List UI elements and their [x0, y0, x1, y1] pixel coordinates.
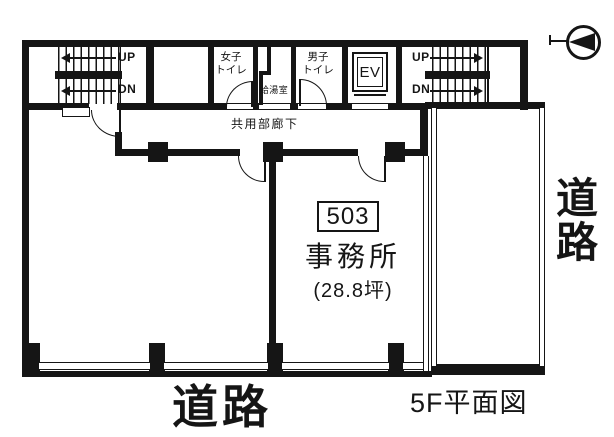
unit-number: 503 — [326, 203, 369, 231]
up-arrow-line — [430, 57, 478, 59]
door-arc-women-toilet — [226, 81, 253, 107]
wall-room-divider — [269, 156, 276, 348]
stairs-right-down-label: DN — [412, 83, 430, 97]
unit-number-badge: 503 — [317, 201, 379, 232]
wall-divider — [396, 47, 402, 105]
balcony-left-edge — [431, 108, 437, 366]
window-office-right — [423, 156, 429, 371]
balcony-right-edge — [539, 108, 545, 366]
door-leaf — [299, 79, 301, 106]
pillar — [149, 343, 165, 372]
pillar — [22, 343, 40, 372]
wall-outer-right-upper — [520, 40, 528, 110]
wall-corridor-bottom — [117, 149, 240, 156]
window — [282, 362, 389, 370]
up-arrow-line — [66, 57, 116, 59]
unit-use-label: 事務所 — [300, 241, 406, 273]
unit-area-label: (28.8坪) — [300, 280, 406, 303]
stair-landing-step — [62, 107, 90, 117]
compass-tail — [551, 40, 569, 42]
wall-divider — [146, 47, 154, 105]
door-leaf — [251, 81, 253, 107]
up-arrow-head — [61, 53, 70, 63]
stairs-landing — [425, 71, 490, 79]
down-arrow-head — [474, 86, 483, 96]
pillar — [148, 142, 168, 162]
down-arrow-line — [430, 90, 478, 92]
door-leaf — [264, 156, 266, 182]
elevator-shaft: EV — [352, 52, 388, 92]
stairs-left-up-label: UP — [118, 51, 136, 65]
wall-outer-top — [22, 40, 528, 47]
wall-kitchenette-jog — [267, 47, 271, 74]
threshold-kitchenette — [259, 103, 290, 110]
kitchenette-label: 給湯室 — [257, 85, 291, 95]
door-arc-stair-exit — [91, 110, 120, 137]
plan-caption: 5F平面図 — [410, 388, 528, 419]
women-toilet-label: 女子トイレ — [208, 51, 254, 77]
pillar — [388, 343, 404, 372]
wall-corridor-right — [420, 103, 428, 156]
elevator-label: EV — [357, 57, 383, 87]
up-arrow-head — [474, 53, 483, 63]
north-arrow-icon — [545, 22, 607, 64]
window — [164, 362, 268, 370]
pillar — [385, 142, 405, 162]
down-arrow-head — [61, 86, 70, 96]
stairs-edge-line — [487, 47, 489, 103]
stairs-landing — [55, 71, 122, 79]
threshold-elevator — [352, 103, 388, 110]
down-arrow-line — [66, 90, 116, 92]
window — [403, 362, 424, 370]
window — [39, 362, 150, 370]
stairs-right-up-label: UP — [412, 51, 430, 65]
elevator-door-line — [354, 94, 386, 96]
door-arc-office — [358, 156, 384, 182]
road-label-bottom: 道路 — [172, 381, 272, 434]
wall-band — [326, 103, 352, 110]
wall-divider — [342, 47, 348, 105]
road-label-right: 道路 — [556, 177, 602, 265]
door-leaf — [384, 156, 386, 182]
compass-needle — [569, 33, 595, 51]
stairs-left-down-label: DN — [118, 83, 136, 97]
door-arc-men-toilet — [300, 79, 327, 106]
wall-outer-left — [22, 40, 29, 377]
wall-balcony-bottom — [431, 364, 545, 375]
floor-plan-sheet: EV UP DN UP DN 女子トイレ 給湯室 男子トイレ 共用部廊下 503… — [0, 0, 614, 437]
wall-bottom-sill — [22, 371, 432, 377]
door-arc-left-room — [238, 156, 264, 182]
door-leaf — [119, 110, 121, 137]
pillar — [267, 343, 283, 372]
compass-tick — [549, 35, 551, 45]
corridor-label: 共用部廊下 — [231, 118, 299, 132]
men-toilet-label: 男子トイレ — [295, 51, 341, 77]
